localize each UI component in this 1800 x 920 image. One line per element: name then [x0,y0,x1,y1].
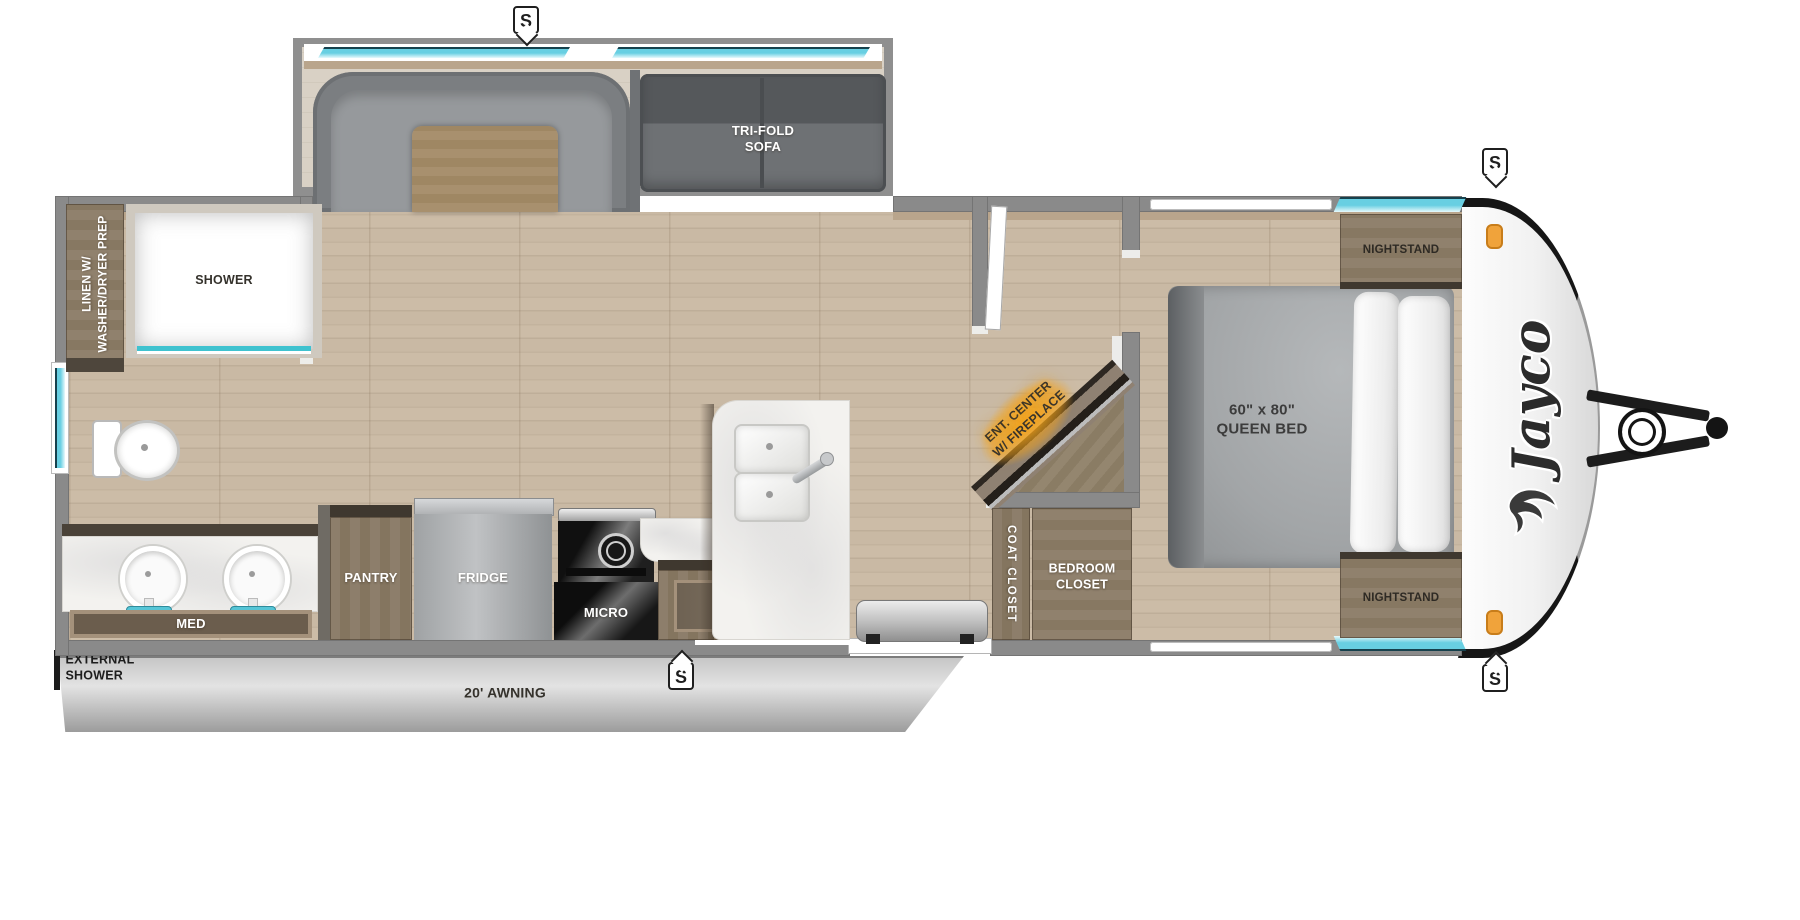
slideout-trim [304,61,882,69]
kitchen-sink-lower-drain [766,491,773,498]
shower-glass [137,346,311,351]
hitch-jack-wheel [1618,408,1666,456]
doorway-stub-wall [1122,196,1140,254]
bedroom-top-window-white [1150,199,1332,210]
bed-pillow-left [1350,292,1401,555]
bed-pillow-right [1398,296,1450,552]
hitch-ball [1706,417,1728,439]
range-burner [598,533,634,569]
nightstand-top-label: NIGHTSTAND [1363,243,1440,257]
pantry-label: PANTRY [344,570,397,586]
dinette-table [412,126,558,212]
slideout-window-right [612,47,870,58]
bedroom-top-window [1334,197,1467,212]
entry-step-foot-left [866,634,880,644]
external-shower-marker [54,650,60,690]
slideout-window-left [318,47,570,58]
kitchen-sink-upper-drain [766,443,773,450]
bedroom-bottom-window-white [1150,642,1332,652]
med-label: MED [176,616,206,632]
clearance-light-bottom [1486,610,1503,635]
speaker-marker-top: S [513,6,539,36]
slideout-divider [630,70,640,212]
partition-lower-wall [1122,332,1140,494]
jayco-logo-text: Jayco [1502,320,1563,475]
kitchen-faucet-base [820,452,834,466]
tri-fold-sofa-label: TRI-FOLD SOFA [732,123,794,156]
speaker-marker-top-right: S [1482,148,1508,178]
jayco-bird-icon [1500,486,1564,538]
bedroom-bottom-window [1334,636,1467,651]
range-control-strip [566,568,646,576]
speaker-marker-bottom: S [668,660,694,690]
kitchen-sink-upper [734,424,810,474]
coat-closet-label: COAT CLOSET [1004,525,1018,623]
entry-step-foot-right [960,634,974,644]
vanity-sink-right-drain [249,571,255,577]
bedroom-closet-label: BEDROOM CLOSET [1049,561,1116,592]
micro-label: MICRO [584,605,628,621]
bed-foot-bolster [1168,286,1204,568]
left-wall-window [55,368,65,468]
nightstand-top-edge [1340,282,1462,289]
clearance-light-top [1486,224,1503,249]
toilet-flush-dot [141,444,148,451]
awning-label: 20' AWNING [464,684,546,702]
doorway-stub-cap [1122,250,1140,258]
vanity-counter-edge [62,524,318,536]
nightstand-bottom-label: NIGHTSTAND [1363,591,1440,605]
pantry-top-edge [330,505,412,517]
external-shower-label: EXTERNAL SHOWER [66,652,135,683]
nightstand-bottom-edge [1340,552,1462,559]
shower-label: SHOWER [195,273,252,289]
vanity-sink-left-drain [145,571,151,577]
queen-bed-label: 60" x 80" QUEEN BED [1217,401,1308,439]
linen-label: LINEN W/ WASHER/DRYER PREP [79,199,110,369]
speaker-marker-bottom-right: S [1482,662,1508,692]
toilet-bowl [114,420,180,481]
fridge-label: FRIDGE [458,570,508,586]
jayco-logo: Jayco [1502,320,1563,545]
floorplan-canvas: 20' AWNING EXTERNAL SHOWER Jayco [0,0,1800,920]
